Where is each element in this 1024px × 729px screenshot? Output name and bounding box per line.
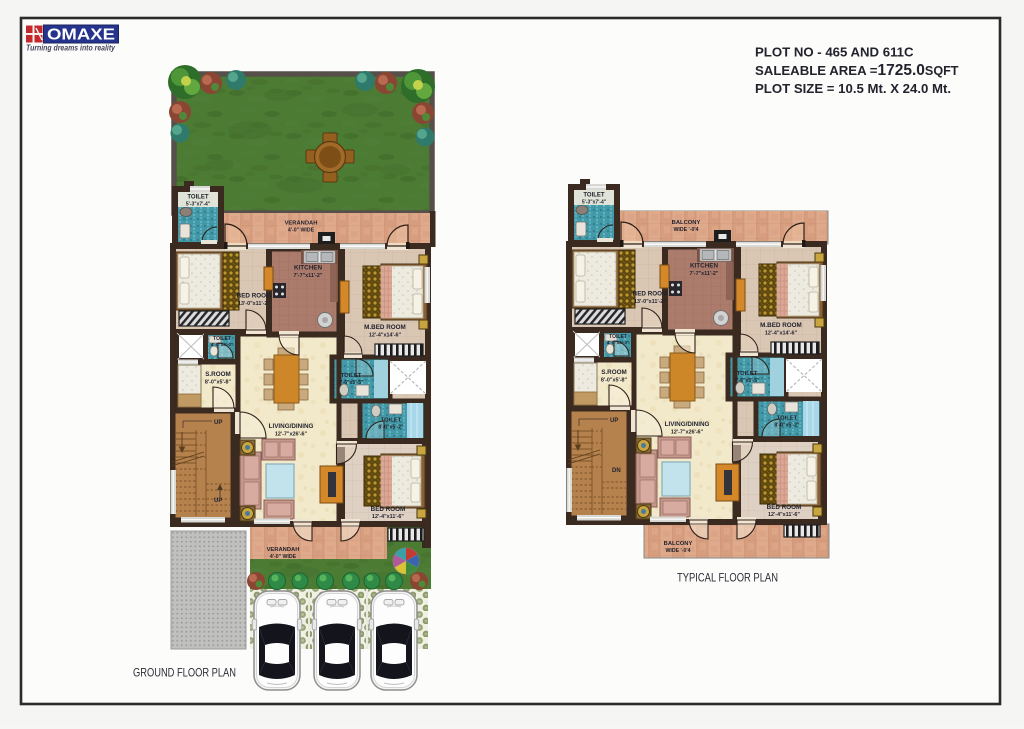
svg-text:PLOT NO - 465 AND 611C: PLOT NO - 465 AND 611C [755, 45, 914, 60]
svg-text:WIDE '-0'4: WIDE '-0'4 [674, 227, 699, 233]
svg-text:Turning dreams into reality: Turning dreams into reality [26, 44, 115, 53]
svg-text:VERANDAH: VERANDAH [267, 547, 300, 553]
svg-text:SALEABLE AREA =1725.0SQFT: SALEABLE AREA =1725.0SQFT [755, 62, 959, 79]
svg-text:BALCONY: BALCONY [672, 220, 701, 226]
svg-text:UP: UP [214, 498, 222, 504]
svg-text:WIDE '-0'4: WIDE '-0'4 [666, 548, 691, 554]
svg-text:4'-0" WIDE: 4'-0" WIDE [288, 228, 315, 234]
svg-text:GROUND FLOOR PLAN: GROUND FLOOR PLAN [133, 666, 236, 680]
svg-text:DN: DN [612, 468, 621, 474]
svg-text:OMAXE: OMAXE [47, 27, 115, 44]
svg-text:TYPICAL FLOOR PLAN: TYPICAL FLOOR PLAN [677, 571, 778, 585]
svg-text:BALCONY: BALCONY [664, 541, 693, 547]
svg-text:VERANDAH: VERANDAH [285, 221, 318, 227]
svg-text:PLOT SIZE = 10.5 Mt. X 24.0 Mt: PLOT SIZE = 10.5 Mt. X 24.0 Mt. [755, 81, 951, 96]
